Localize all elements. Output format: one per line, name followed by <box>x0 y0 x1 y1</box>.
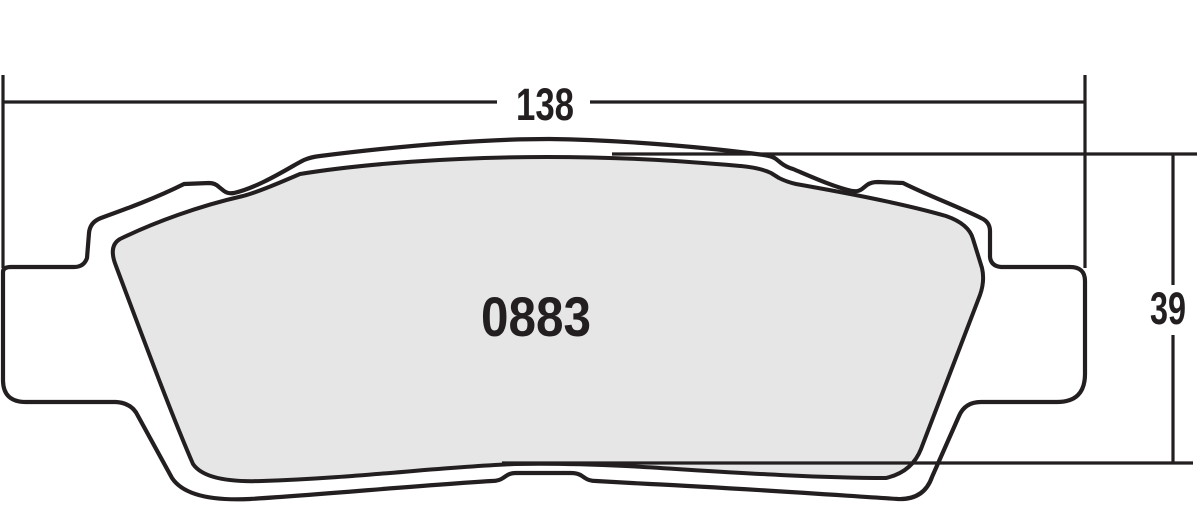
shape-group <box>3 75 1197 499</box>
width-dimension-label: 138 <box>516 79 574 130</box>
height-dimension-label: 39 <box>1150 283 1186 334</box>
part-number-label: 0883 <box>481 285 591 348</box>
diagram-canvas: 138 39 0883 <box>0 0 1199 505</box>
brake-pad-technical-drawing: 138 39 0883 <box>0 0 1199 505</box>
